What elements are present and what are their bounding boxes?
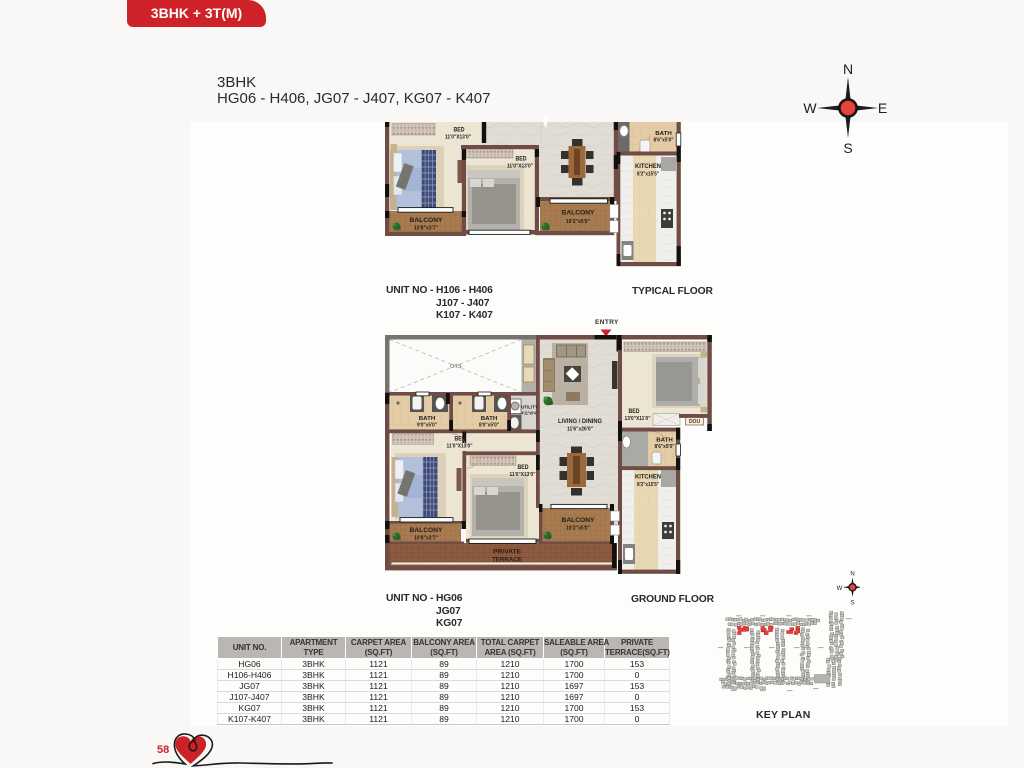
svg-text:BATH: BATH — [419, 416, 436, 422]
svg-text:BALCONY: BALCONY — [410, 217, 444, 224]
svg-text:S: S — [850, 601, 854, 607]
svg-text:9'0"x5'0": 9'0"x5'0" — [417, 423, 437, 429]
svg-text:BALCONY: BALCONY — [562, 210, 596, 217]
svg-text:8'0"x5'0": 8'0"x5'0" — [479, 423, 499, 429]
svg-text:BED: BED — [455, 436, 466, 443]
svg-text:8'2"x15'5": 8'2"x15'5" — [637, 172, 659, 178]
svg-text:W: W — [837, 586, 843, 592]
svg-text:11'0"X13'0": 11'0"X13'0" — [445, 135, 471, 141]
svg-text:PRIVATE: PRIVATE — [493, 549, 521, 556]
svg-text:BED: BED — [516, 156, 527, 163]
svg-text:11'6"x26'0": 11'6"x26'0" — [567, 427, 593, 433]
svg-text:S: S — [843, 140, 852, 156]
svg-text:11'0"X13'0": 11'0"X13'0" — [507, 164, 533, 170]
svg-text:TERRACE: TERRACE — [492, 557, 522, 564]
svg-text:E: E — [878, 100, 887, 116]
svg-text:BALCONY: BALCONY — [562, 517, 596, 524]
svg-text:10'2"x5'0": 10'2"x5'0" — [566, 219, 590, 225]
svg-text:8'6"x5'0": 8'6"x5'0" — [654, 138, 674, 144]
svg-text:11'0"X13'0": 11'0"X13'0" — [447, 444, 473, 450]
svg-text:BALCONY: BALCONY — [410, 527, 444, 534]
svg-text:LIVING / DINING: LIVING / DINING — [558, 418, 602, 425]
svg-text:BED: BED — [629, 408, 640, 415]
svg-text:KITCHEN: KITCHEN — [635, 163, 661, 170]
svg-text:N: N — [843, 61, 853, 77]
svg-text:4'11"x5'4": 4'11"x5'4" — [522, 411, 538, 416]
svg-text:OTS: OTS — [450, 364, 462, 370]
svg-text:BATH: BATH — [656, 438, 673, 444]
svg-text:10'2"x5'0": 10'2"x5'0" — [566, 526, 590, 532]
svg-text:8'2"x15'5": 8'2"x15'5" — [637, 482, 659, 488]
svg-text:10'8"x3'7": 10'8"x3'7" — [414, 226, 438, 232]
svg-text:W: W — [803, 100, 817, 116]
svg-text:BATH: BATH — [655, 131, 672, 137]
svg-text:KITCHEN: KITCHEN — [635, 474, 661, 481]
svg-text:11'0"X13'0": 11'0"X13'0" — [510, 472, 536, 478]
svg-text:10'8"x3'7": 10'8"x3'7" — [414, 536, 438, 542]
svg-text:8'6"x5'0": 8'6"x5'0" — [655, 444, 675, 450]
svg-text:BED: BED — [518, 464, 529, 471]
svg-text:N: N — [850, 572, 854, 578]
svg-text:DOU: DOU — [689, 419, 701, 425]
svg-text:BED: BED — [454, 127, 465, 134]
svg-text:13'0"X11'0": 13'0"X11'0" — [625, 416, 651, 422]
svg-text:BATH: BATH — [481, 416, 498, 422]
